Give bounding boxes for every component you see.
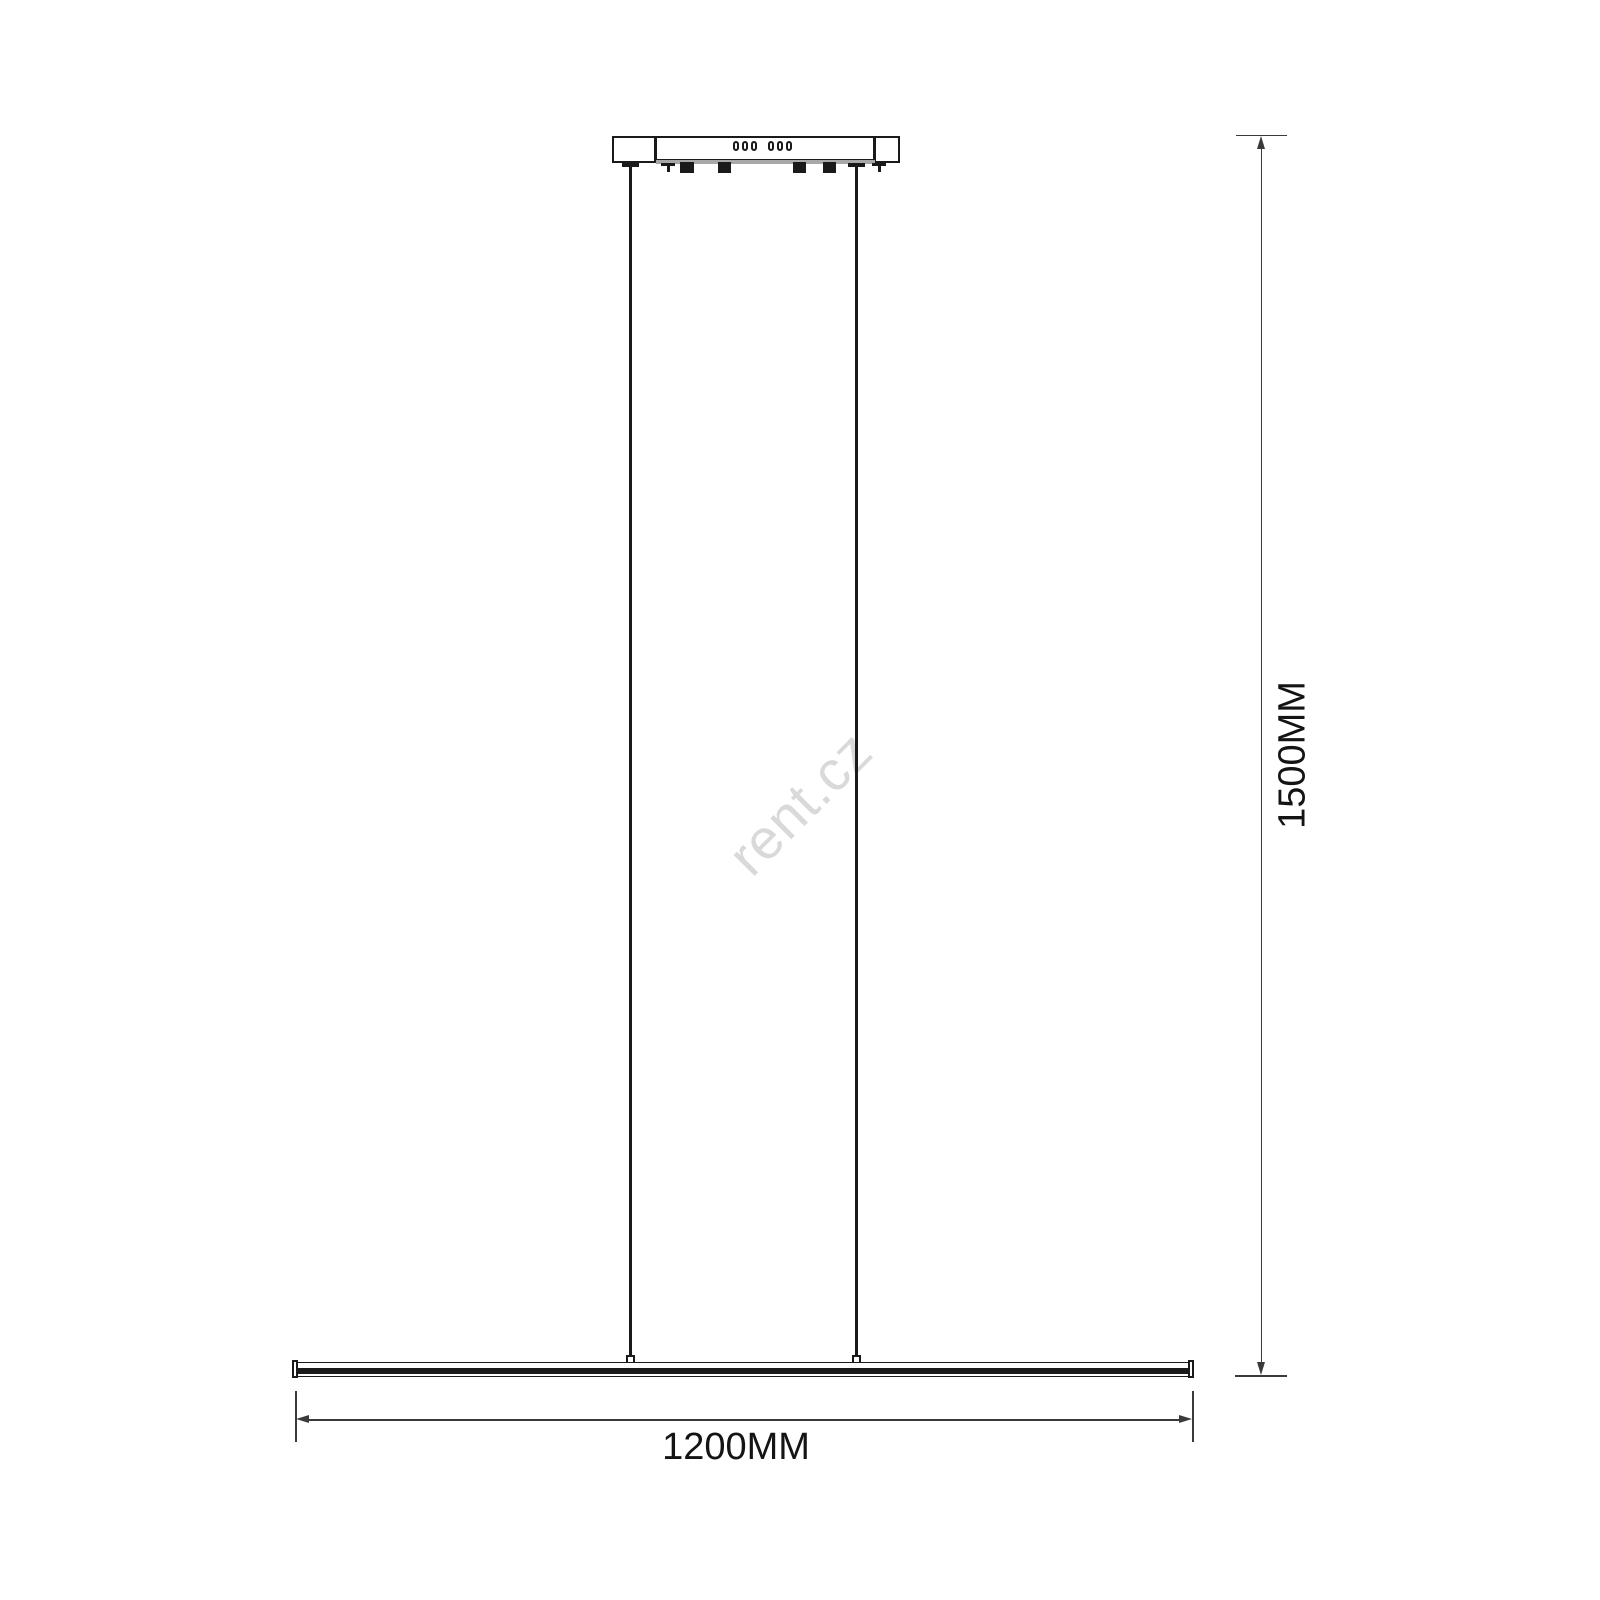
arrow-right-icon (1179, 1415, 1192, 1423)
mounting-screw-stem (878, 163, 881, 172)
width-dimension-label: 1200MM (662, 1426, 810, 1469)
extension-line-right (1192, 1391, 1194, 1442)
vent-slot (768, 141, 774, 151)
dimension-line-width (306, 1419, 1182, 1421)
mounting-clip (718, 162, 731, 173)
canopy-body (655, 136, 875, 161)
arrow-down-icon (1257, 1362, 1265, 1375)
mounting-clip (680, 162, 694, 173)
vent-slot (751, 141, 757, 151)
vent-slot (742, 141, 748, 151)
canopy-left-endcap (612, 136, 656, 163)
arrow-up-icon (1257, 136, 1265, 149)
vent-slot (786, 141, 792, 151)
vent-slot (733, 141, 739, 151)
watermark-text: rent.cz (715, 718, 885, 888)
light-bar-diffuser (298, 1368, 1188, 1374)
vent-slot (777, 141, 783, 151)
arrow-left-icon (296, 1415, 309, 1423)
suspension-wire-left (629, 167, 632, 1357)
technical-drawing-canvas: rent.cz (0, 0, 1600, 1600)
mounting-screw-stem (667, 163, 670, 172)
mounting-clip (793, 162, 806, 173)
light-bar-endcap-left (292, 1360, 298, 1378)
canopy-right-endcap (874, 136, 900, 163)
extension-line-bottom (1235, 1375, 1287, 1377)
suspension-wire-right (855, 167, 858, 1357)
height-dimension-label: 1500MM (1272, 681, 1315, 829)
mounting-clip (823, 162, 836, 173)
dimension-line-height (1261, 147, 1263, 1364)
light-bar-endcap-right (1188, 1360, 1194, 1378)
